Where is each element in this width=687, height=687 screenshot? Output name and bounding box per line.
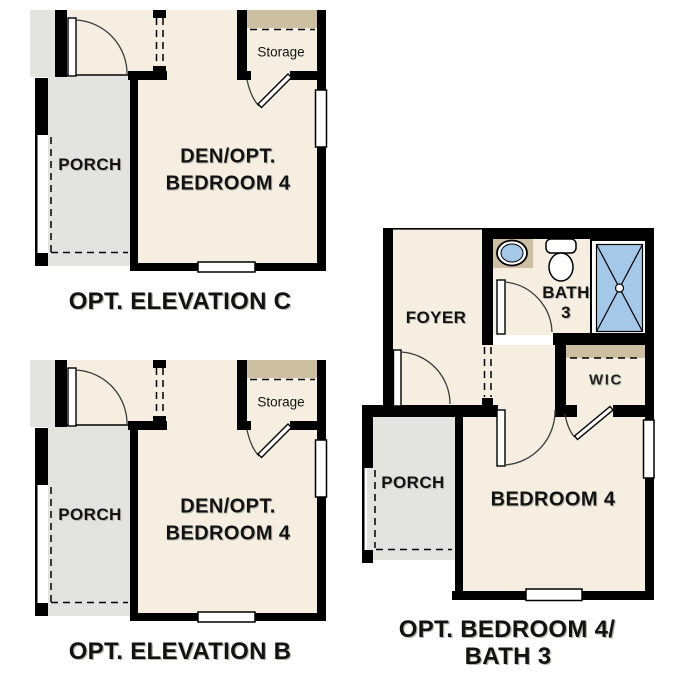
room-label-storage: Storage <box>257 395 304 410</box>
sink-icon <box>492 239 533 268</box>
room-label-bedroom: BEDROOM 4 <box>491 489 616 512</box>
room-label-den-line2: BEDROOM 4 <box>166 173 291 196</box>
room-label-storage: Storage <box>257 45 304 60</box>
room-label-foyer: FOYER <box>406 308 467 328</box>
panel-caption-bedroom4-line2: BATH 3 <box>465 643 552 671</box>
floor-plan-page: Storage PORCH DEN/OPT. BEDROOM 4 OPT. EL… <box>0 0 687 687</box>
window <box>644 420 655 478</box>
bedroom4-bath3-plan <box>362 228 654 601</box>
panel-caption-elevation-b: OPT. ELEVATION B <box>69 638 292 666</box>
room-label-bath-line1: BATH <box>542 283 590 303</box>
room-label-den-line1: DEN/OPT. <box>180 146 275 169</box>
floor-plan-canvas <box>0 0 687 687</box>
shower-icon <box>591 240 648 336</box>
panel-caption-elevation-c: OPT. ELEVATION C <box>69 288 292 316</box>
room-label-den-line1: DEN/OPT. <box>180 496 275 519</box>
room-label-bath-line2: 3 <box>561 303 571 323</box>
room-label-porch: PORCH <box>58 155 121 175</box>
window <box>526 589 582 601</box>
toilet-icon <box>546 239 576 281</box>
panel-caption-bedroom4-line1: OPT. BEDROOM 4/ <box>399 616 616 644</box>
room-label-porch: PORCH <box>58 505 121 525</box>
room-label-wic: WIC <box>589 372 623 389</box>
room-label-porch: PORCH <box>381 473 444 493</box>
room-label-den-line2: BEDROOM 4 <box>166 523 291 546</box>
